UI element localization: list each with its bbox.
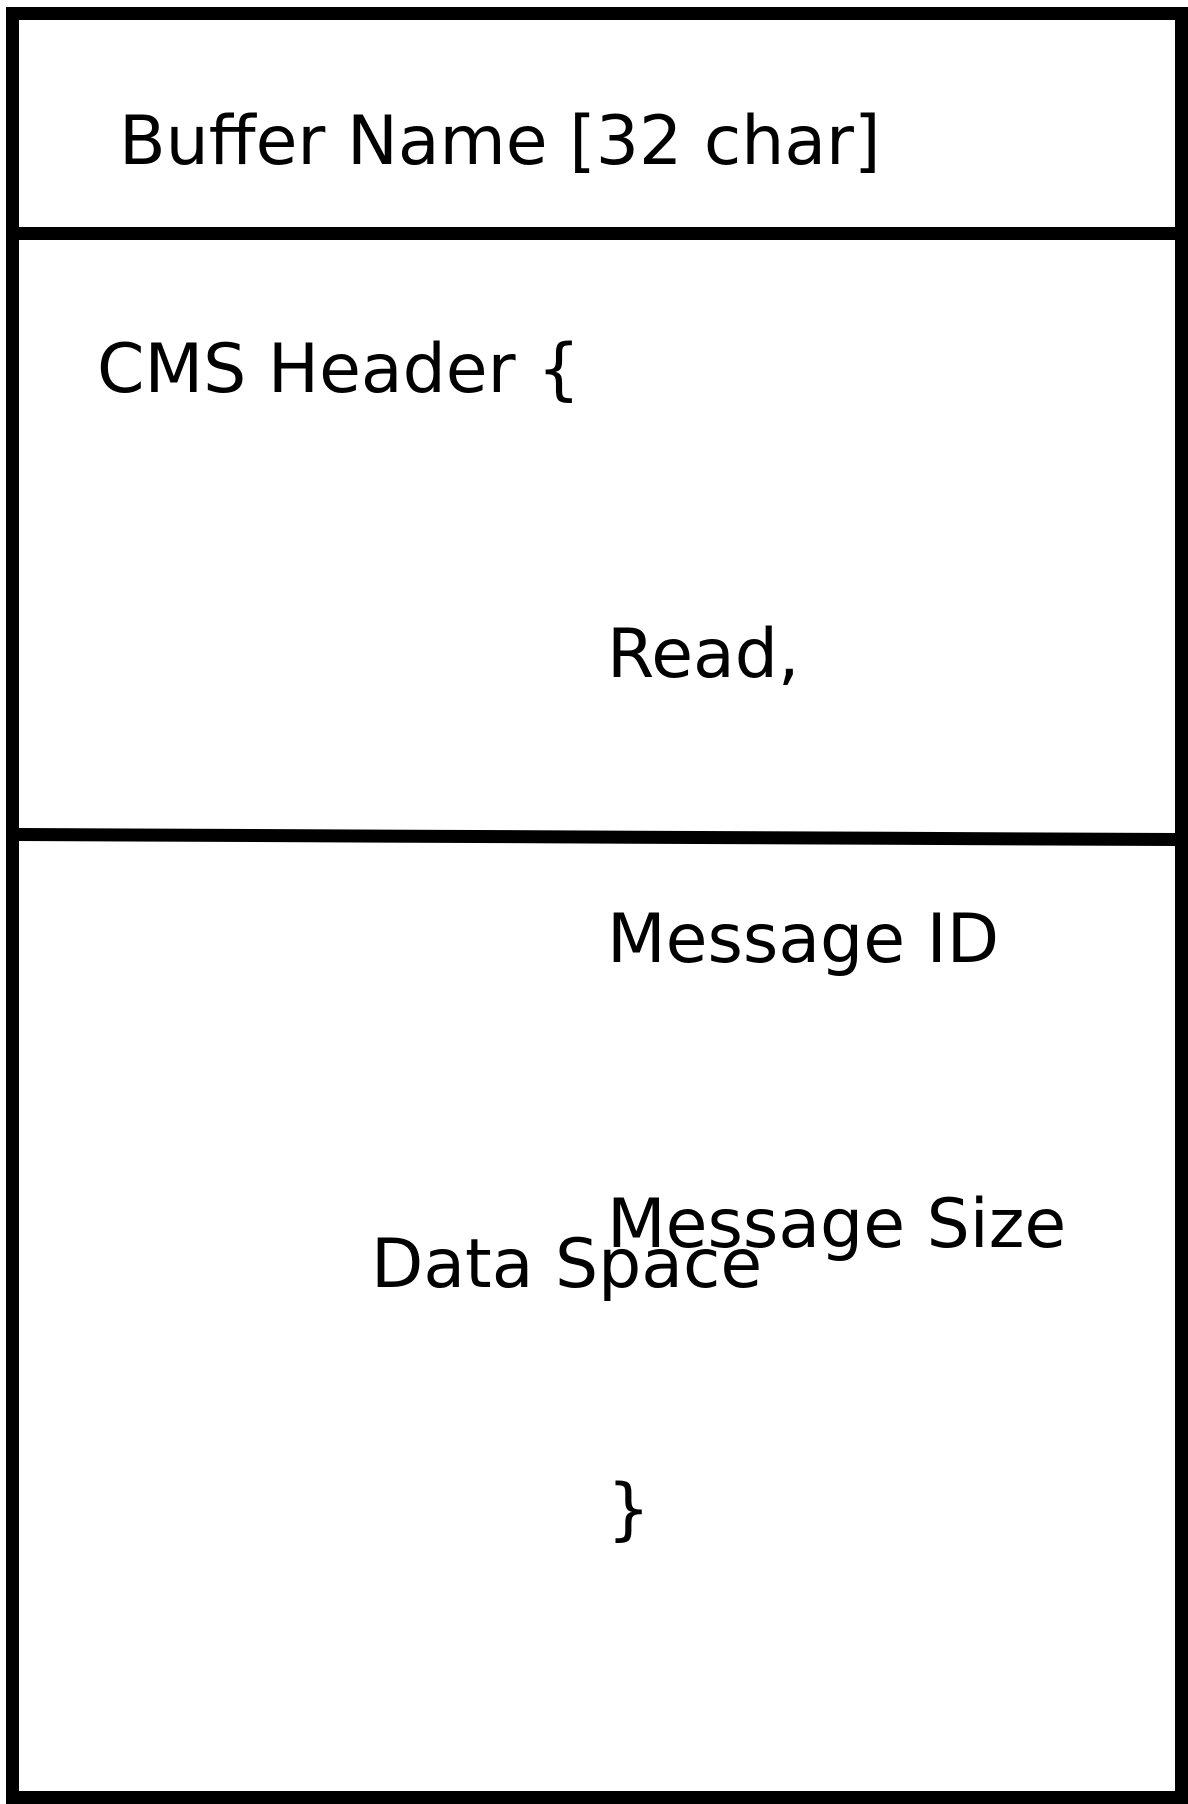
cms-header-opening-label: CMS Header {: [97, 322, 580, 417]
buffer-name-label: Buffer Name [32 char]: [119, 94, 881, 189]
buffer-memory-layout-diagram: Buffer Name [32 char] CMS Header { Read,…: [0, 0, 1188, 1804]
cms-header-field-list: Read, Message ID Message Size }: [607, 417, 1066, 1747]
buffer-outline-box: Buffer Name [32 char] CMS Header { Read,…: [6, 7, 1188, 1804]
divider-buffer-name-cms-header: [19, 227, 1175, 240]
cms-header-field-read: Read,: [607, 607, 1066, 702]
data-space-label: Data Space: [371, 1217, 762, 1312]
cms-header-closing-brace: }: [607, 1462, 1066, 1557]
cms-header-field-message-id: Message ID: [607, 892, 1066, 987]
